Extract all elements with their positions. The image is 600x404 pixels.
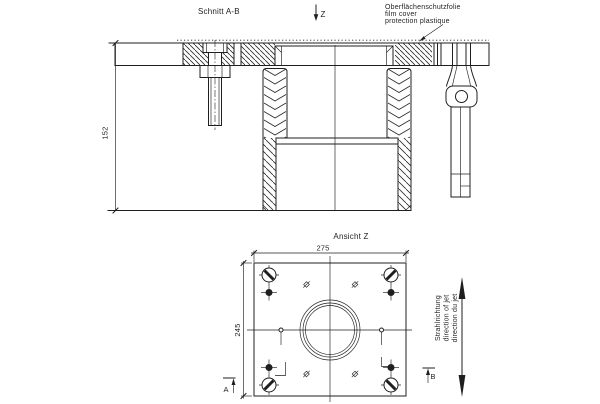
section-marker-a: A (224, 378, 236, 394)
dim-245-label: 245 (233, 323, 242, 336)
dimension-245: 245 (233, 261, 252, 399)
z-view-direction-arrow: Z (314, 5, 326, 21)
section-view: Schnitt A-B Z Oberflächenschutzfolie fil… (101, 4, 490, 213)
section-title: Schnitt A-B (198, 7, 240, 16)
jet-direction-arrow (459, 277, 466, 397)
dim-152-label: 152 (101, 126, 110, 139)
lower-housing-box (108, 138, 411, 211)
plan-title: Ansicht Z (333, 232, 368, 241)
film-cover-note: Oberflächenschutzfolie film cover protec… (385, 4, 461, 42)
nozzle-flange (275, 46, 393, 66)
film-note-en: film cover (385, 11, 417, 18)
technical-drawing-page: Schnitt A-B Z Oberflächenschutzfolie fil… (0, 0, 600, 404)
film-note-de: Oberflächenschutzfolie (385, 4, 461, 11)
film-note-leader-arrow (419, 25, 443, 42)
plan-view: Ansicht Z 275 245 (224, 232, 466, 402)
z-arrow-label: Z (321, 10, 326, 19)
swing-clamp-bolt (446, 43, 477, 197)
jet-direction-annotation: Strahlrichtung direction of jet directio… (435, 277, 465, 397)
marker-b-label: B (431, 372, 436, 381)
nozzle-housing-walls (263, 69, 411, 211)
jet-note-en: direction of jet (444, 295, 451, 342)
dim-275-label: 275 (316, 244, 329, 253)
jet-note-fr: direction du jet (452, 294, 459, 343)
marker-a-label: A (224, 385, 229, 394)
section-marker-b: B (423, 368, 436, 383)
film-note-fr: protection plastique (385, 18, 450, 25)
dimension-152: 152 (101, 41, 119, 214)
technical-drawing-canvas: Schnitt A-B Z Oberflächenschutzfolie fil… (0, 0, 600, 404)
jet-note-de: Strahlrichtung (435, 295, 442, 341)
